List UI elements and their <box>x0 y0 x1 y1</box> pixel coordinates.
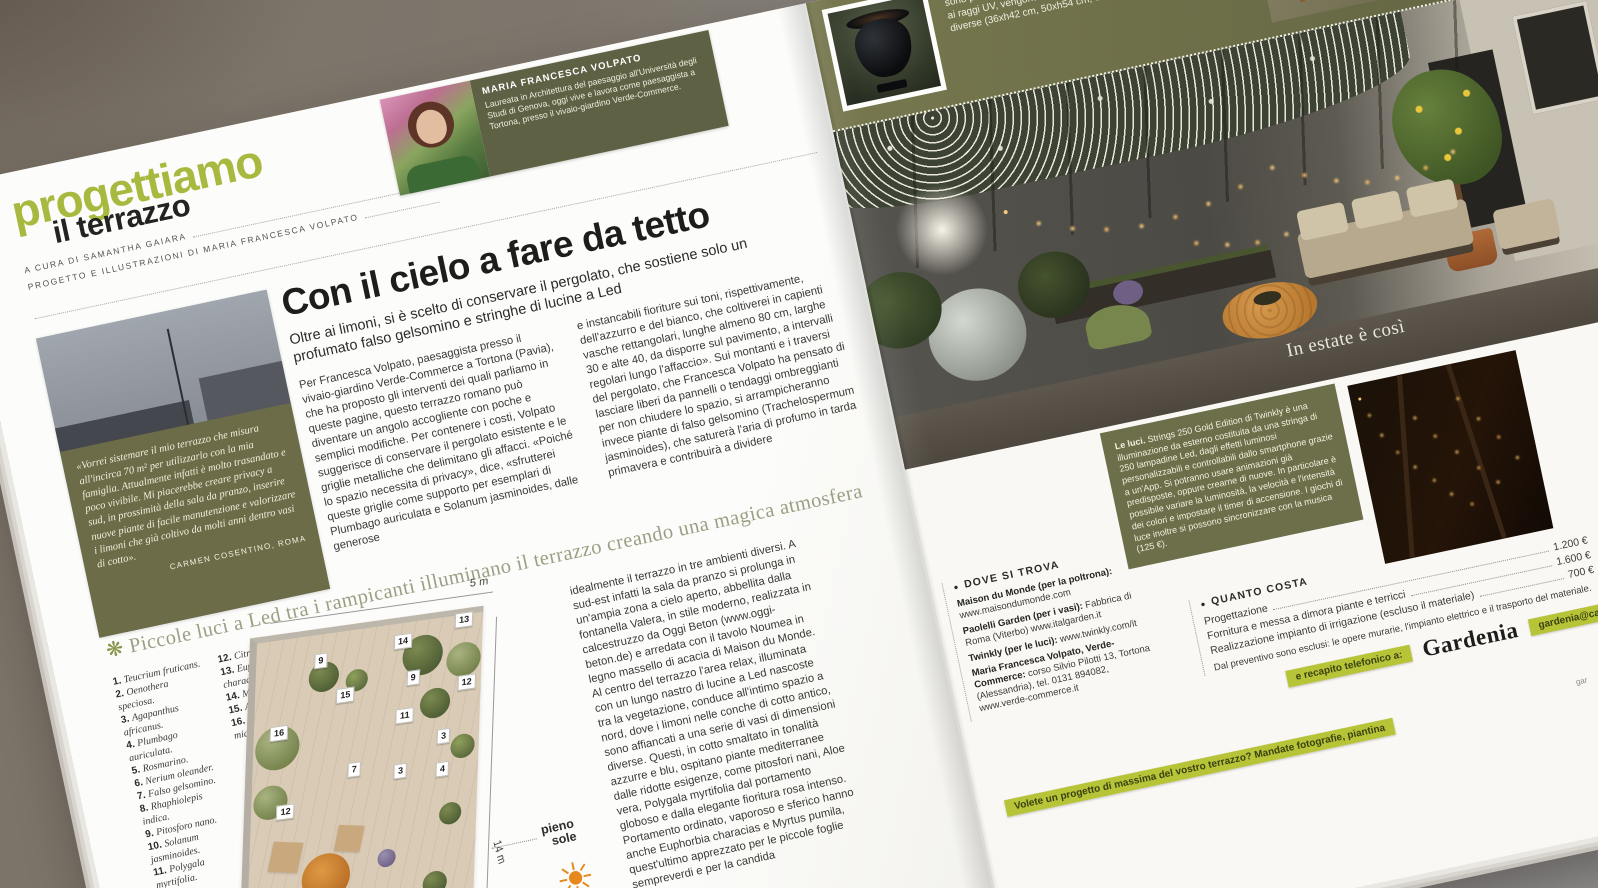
plan-number-tag: 9 <box>314 653 328 670</box>
article-column-1: Per Francesca Volpato, paesaggista press… <box>298 325 590 555</box>
vase-foot <box>876 79 907 93</box>
author-portrait <box>380 81 490 196</box>
sun-icon <box>552 854 600 888</box>
article-column-3: idealmente il terrazzo in tre ambienti d… <box>569 536 867 888</box>
photo-tree-trunk <box>1397 376 1415 558</box>
lights-caption-body: Strings 250 Gold Edition di Twinkly è un… <box>1116 401 1343 555</box>
plan-number-tag: 3 <box>437 727 451 744</box>
render-sofa <box>1297 198 1475 279</box>
dotted-rule <box>365 202 440 219</box>
plan-number-tag: 3 <box>394 763 408 780</box>
page-edge-text: gar <box>1575 676 1588 687</box>
magazine-spread: progettiamo il terrazzo A CURA DI SAMANT… <box>0 0 1598 888</box>
plan-number-tag: 12 <box>457 674 476 692</box>
terrace-plan-illustration: 5 m 14 m 9 <box>235 606 483 888</box>
vase-caption-body: I vasi in terracotta di Paolelli Garden,… <box>944 0 1231 34</box>
render-sofa-cushion <box>1351 190 1404 229</box>
plan-number-tag: 14 <box>394 632 413 650</box>
plan-number-tag: 15 <box>336 686 355 704</box>
section-bullet-icon <box>1199 597 1207 610</box>
photo-string-lights <box>1358 397 1362 401</box>
terrace-before-photo: «Vorrei sistemare il mio terrazzo che mi… <box>36 289 330 637</box>
plan-seat <box>334 824 365 851</box>
photo-tree-trunk <box>1446 364 1507 539</box>
plan-number-tag: 11 <box>396 707 414 724</box>
render-sofa-cushion <box>1406 178 1459 217</box>
cta-strip-part1: Volete un progetto di massima del vostro… <box>1005 721 1395 814</box>
magazine-photo-scene: progettiamo il terrazzo A CURA DI SAMANT… <box>0 0 1598 888</box>
armchair-legs <box>1296 0 1382 2</box>
full-sun-text: pienosole <box>540 817 578 850</box>
plan-number-tag: 7 <box>347 761 361 778</box>
render-sofa-cushion <box>1296 202 1349 241</box>
plan-seat <box>267 842 303 873</box>
plan-number-tag: 13 <box>455 611 474 629</box>
plan-width-label: 5 m <box>470 575 489 590</box>
portrait-shirt <box>404 153 480 193</box>
plan-number-tag: 12 <box>276 803 295 821</box>
asterisk-flower-icon <box>104 637 126 662</box>
article-column-2: e instancabili fioriture sui toni, rispe… <box>576 266 868 496</box>
plan-number-tag: 4 <box>436 761 450 778</box>
plan-number-tag: 16 <box>270 725 289 743</box>
plan-number-tag: 9 <box>406 669 420 686</box>
dotted-rule <box>492 838 537 849</box>
author-bio-text-area: Maria Francesca Volpato Laureata in Arch… <box>470 30 729 177</box>
full-sun-label: pienosole <box>489 817 578 860</box>
author-bio-box: Maria Francesca Volpato Laureata in Arch… <box>380 30 729 196</box>
